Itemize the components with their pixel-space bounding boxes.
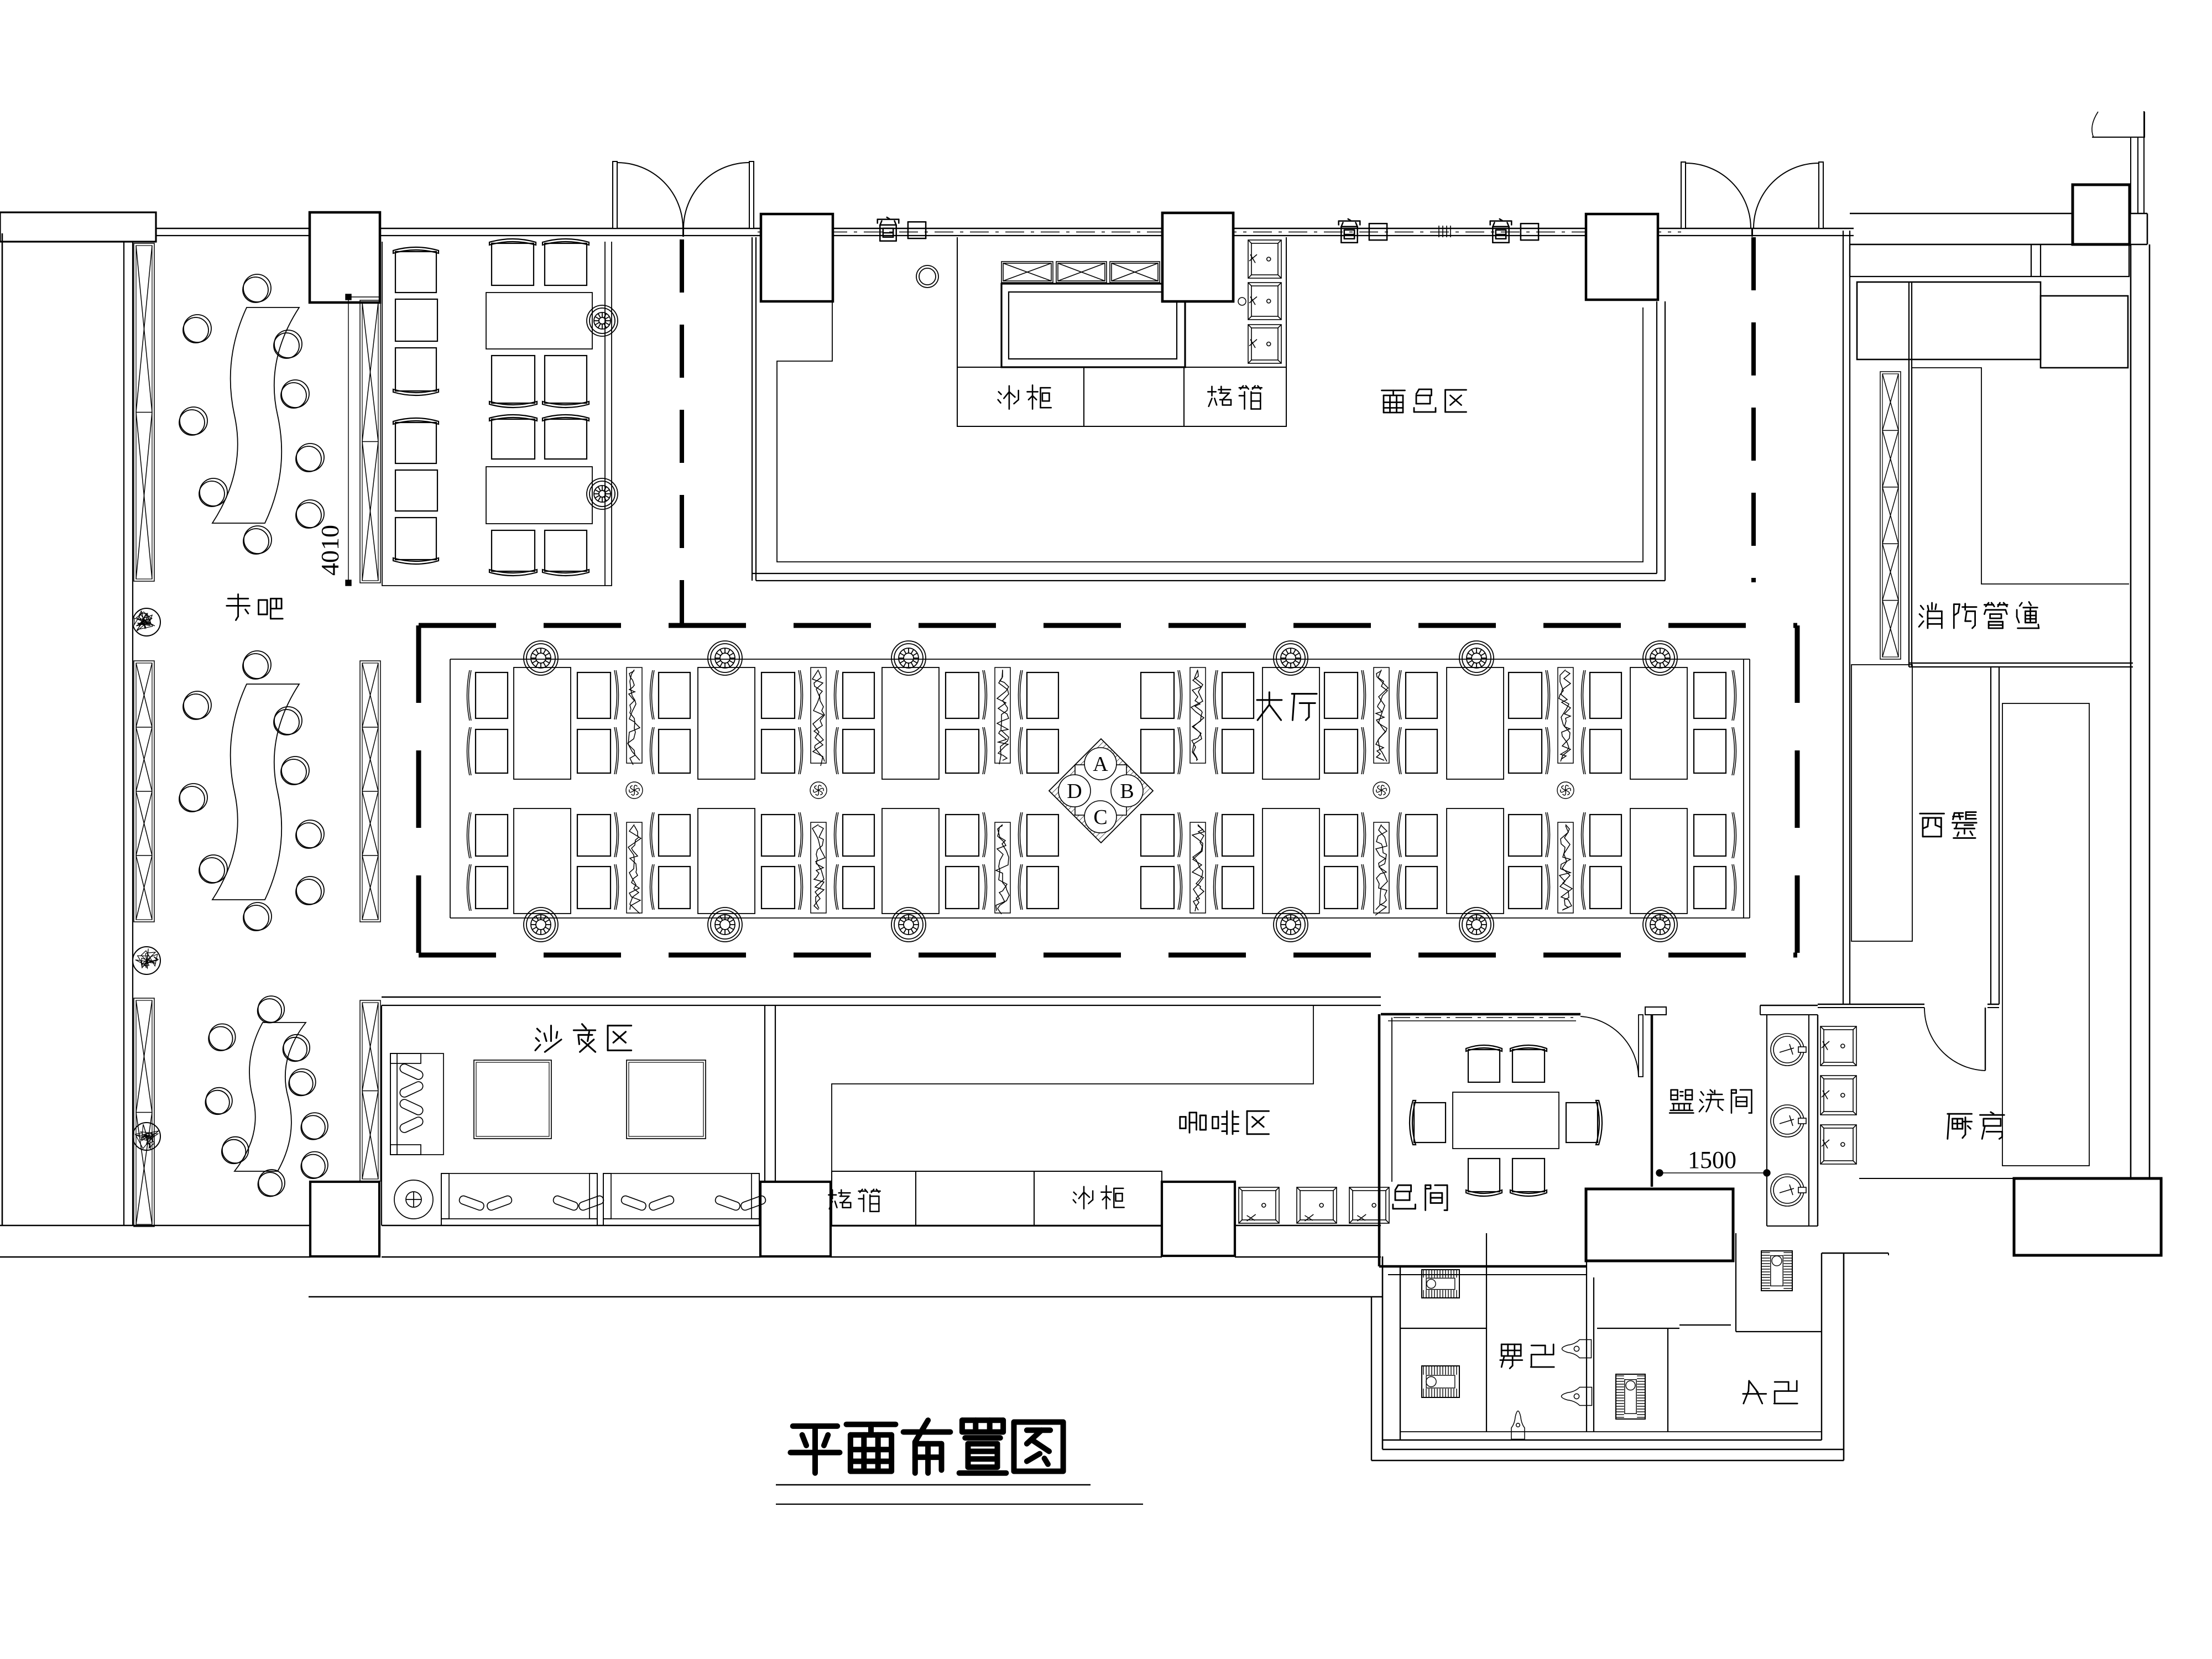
- svg-text:B: B: [1120, 780, 1134, 803]
- svg-text:C: C: [1093, 806, 1107, 829]
- svg-text:D: D: [1067, 780, 1082, 803]
- svg-text:1500: 1500: [1688, 1146, 1736, 1173]
- svg-text:4010: 4010: [316, 525, 344, 576]
- svg-text:A: A: [1093, 753, 1108, 776]
